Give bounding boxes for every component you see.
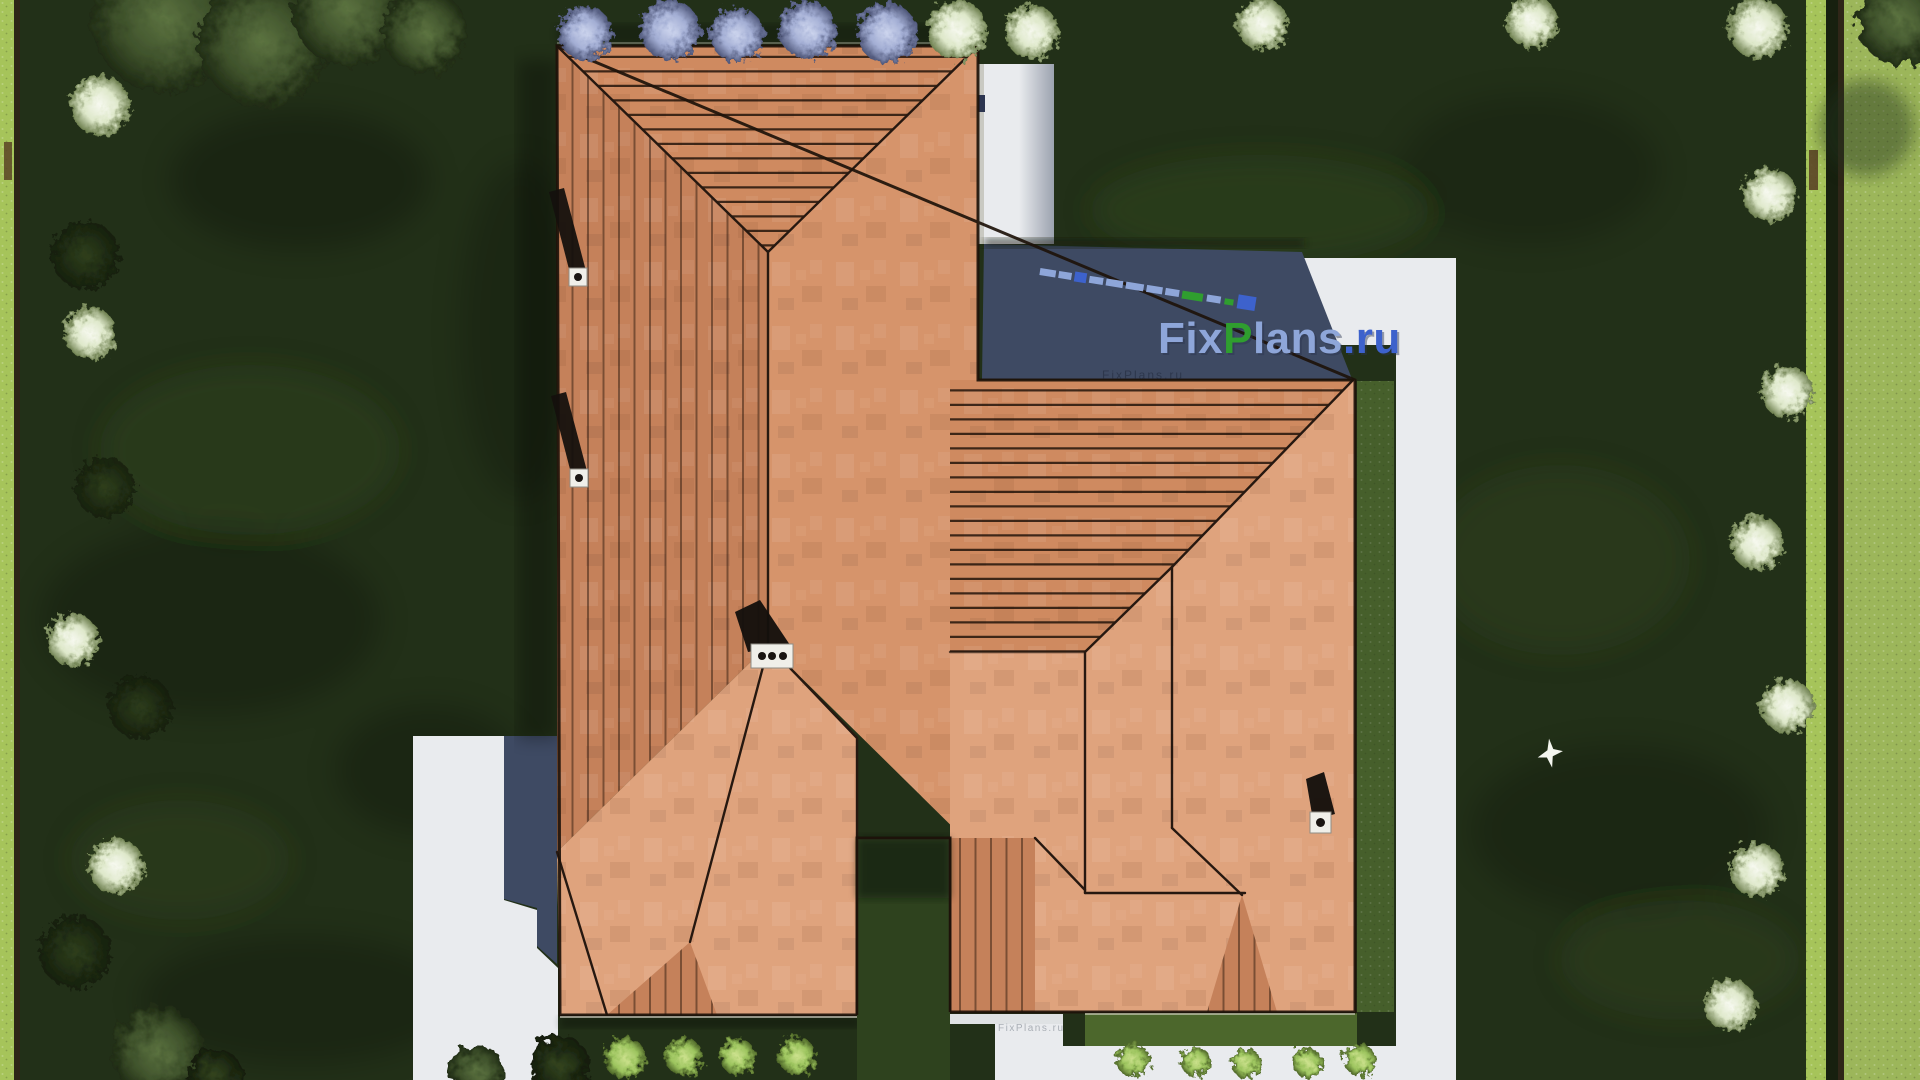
lawn-shade-patch xyxy=(1470,745,1770,915)
lawn-light-patch xyxy=(1560,900,1800,1020)
white-bush xyxy=(1704,979,1756,1031)
lawn-shade-patch xyxy=(1400,95,1660,245)
green-bush xyxy=(1231,1048,1261,1078)
white-bush xyxy=(1730,516,1784,570)
green-bush xyxy=(1181,1047,1211,1077)
lawn-shade-patch xyxy=(40,525,380,715)
courtyard-shadow xyxy=(857,838,950,898)
fence-board-right xyxy=(1809,150,1818,190)
tree-shadow-blob xyxy=(108,675,172,739)
aerial-render: FixPlans.ru FixPlans.ru FixPlans.ru FixP… xyxy=(0,0,1920,1080)
tree-shadow-blob xyxy=(75,458,135,518)
west-eave-ground-shadow xyxy=(518,60,558,740)
tree-shadow-blob xyxy=(39,916,111,988)
chimney-3-flue-c xyxy=(779,652,787,660)
white-bush xyxy=(64,307,116,359)
lawn-light-patch xyxy=(1430,465,1690,655)
white-bush xyxy=(1728,0,1788,58)
watermark-faint-line: FixPlans.ru xyxy=(1102,368,1184,382)
lilac-bush xyxy=(558,6,612,60)
chimney-1-flue xyxy=(574,273,582,281)
walkway-right-vertical xyxy=(1396,345,1456,1046)
green-bush xyxy=(1344,1044,1376,1076)
logo-dash xyxy=(1074,272,1087,284)
lawn-shade-patch xyxy=(170,110,430,250)
fence-board-left xyxy=(4,142,12,180)
walkway-stamp-text: FixPlans.ru xyxy=(998,1023,1065,1034)
patio-shadow-soft-edge xyxy=(984,238,1304,248)
lilac-bush xyxy=(857,3,917,63)
boundary-fence-left xyxy=(14,0,20,1080)
green-bush xyxy=(1293,1048,1323,1078)
chimney-4-flue xyxy=(1316,818,1325,827)
white-bush xyxy=(1730,843,1784,897)
green-bush xyxy=(665,1038,703,1076)
grass-strip-south xyxy=(1085,1013,1357,1046)
white-bush xyxy=(70,75,130,135)
white-bush xyxy=(88,838,144,894)
white-bush xyxy=(1760,679,1814,733)
watermark-text: FixPlans.ru xyxy=(1158,314,1401,363)
courtyard-lawn xyxy=(857,838,950,1080)
white-bush xyxy=(47,614,99,666)
green-bush xyxy=(604,1037,646,1079)
tree-shadow-blob xyxy=(51,221,119,289)
white-bush xyxy=(1005,5,1059,59)
lilac-bush xyxy=(640,0,700,60)
white-bush xyxy=(1761,366,1813,418)
hedge-strip-east-texture xyxy=(1357,381,1394,1012)
chimney-3-flue-a xyxy=(758,652,766,660)
lilac-bush xyxy=(779,1,837,59)
logo-dash xyxy=(1237,294,1257,311)
lilac-bush xyxy=(710,8,764,62)
white-bush xyxy=(1743,168,1797,222)
lawn-light-patch xyxy=(100,365,400,535)
chimney-2-flue xyxy=(575,474,583,482)
walkway-east-upper-shade xyxy=(984,64,1054,244)
foliage-blob xyxy=(1818,80,1914,176)
green-bush xyxy=(1116,1043,1150,1077)
white-bush xyxy=(1236,0,1288,50)
green-bush xyxy=(719,1038,755,1074)
chimney-3-flue-b xyxy=(768,652,776,660)
green-bush xyxy=(778,1037,816,1075)
white-bush xyxy=(927,0,987,60)
roof-facet-south-wing-battens xyxy=(950,838,1035,1012)
